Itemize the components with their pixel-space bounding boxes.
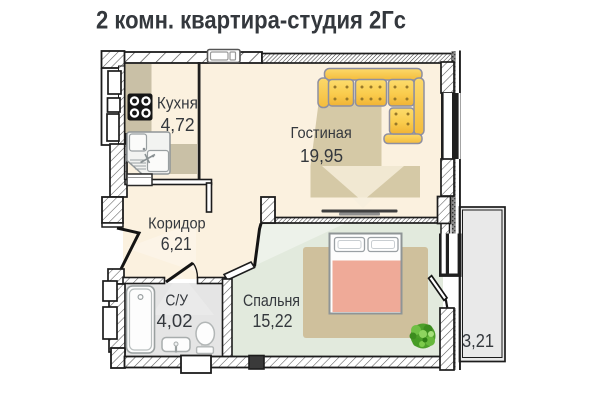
svg-text:Кухня: Кухня bbox=[157, 94, 198, 113]
svg-text:4,02: 4,02 bbox=[157, 310, 193, 331]
svg-text:4,72: 4,72 bbox=[161, 114, 195, 135]
svg-text:19,95: 19,95 bbox=[300, 145, 343, 166]
svg-text:2 комн. квартира-студия 2Гс: 2 комн. квартира-студия 2Гс bbox=[96, 7, 406, 35]
svg-text:Спальня: Спальня bbox=[243, 292, 300, 310]
svg-text:6,21: 6,21 bbox=[161, 233, 192, 254]
svg-text:3,21: 3,21 bbox=[462, 330, 494, 351]
svg-text:С/У: С/У bbox=[165, 293, 188, 310]
svg-text:Коридор: Коридор bbox=[148, 216, 206, 233]
svg-text:Гостиная: Гостиная bbox=[291, 125, 352, 142]
svg-text:15,22: 15,22 bbox=[253, 310, 293, 331]
